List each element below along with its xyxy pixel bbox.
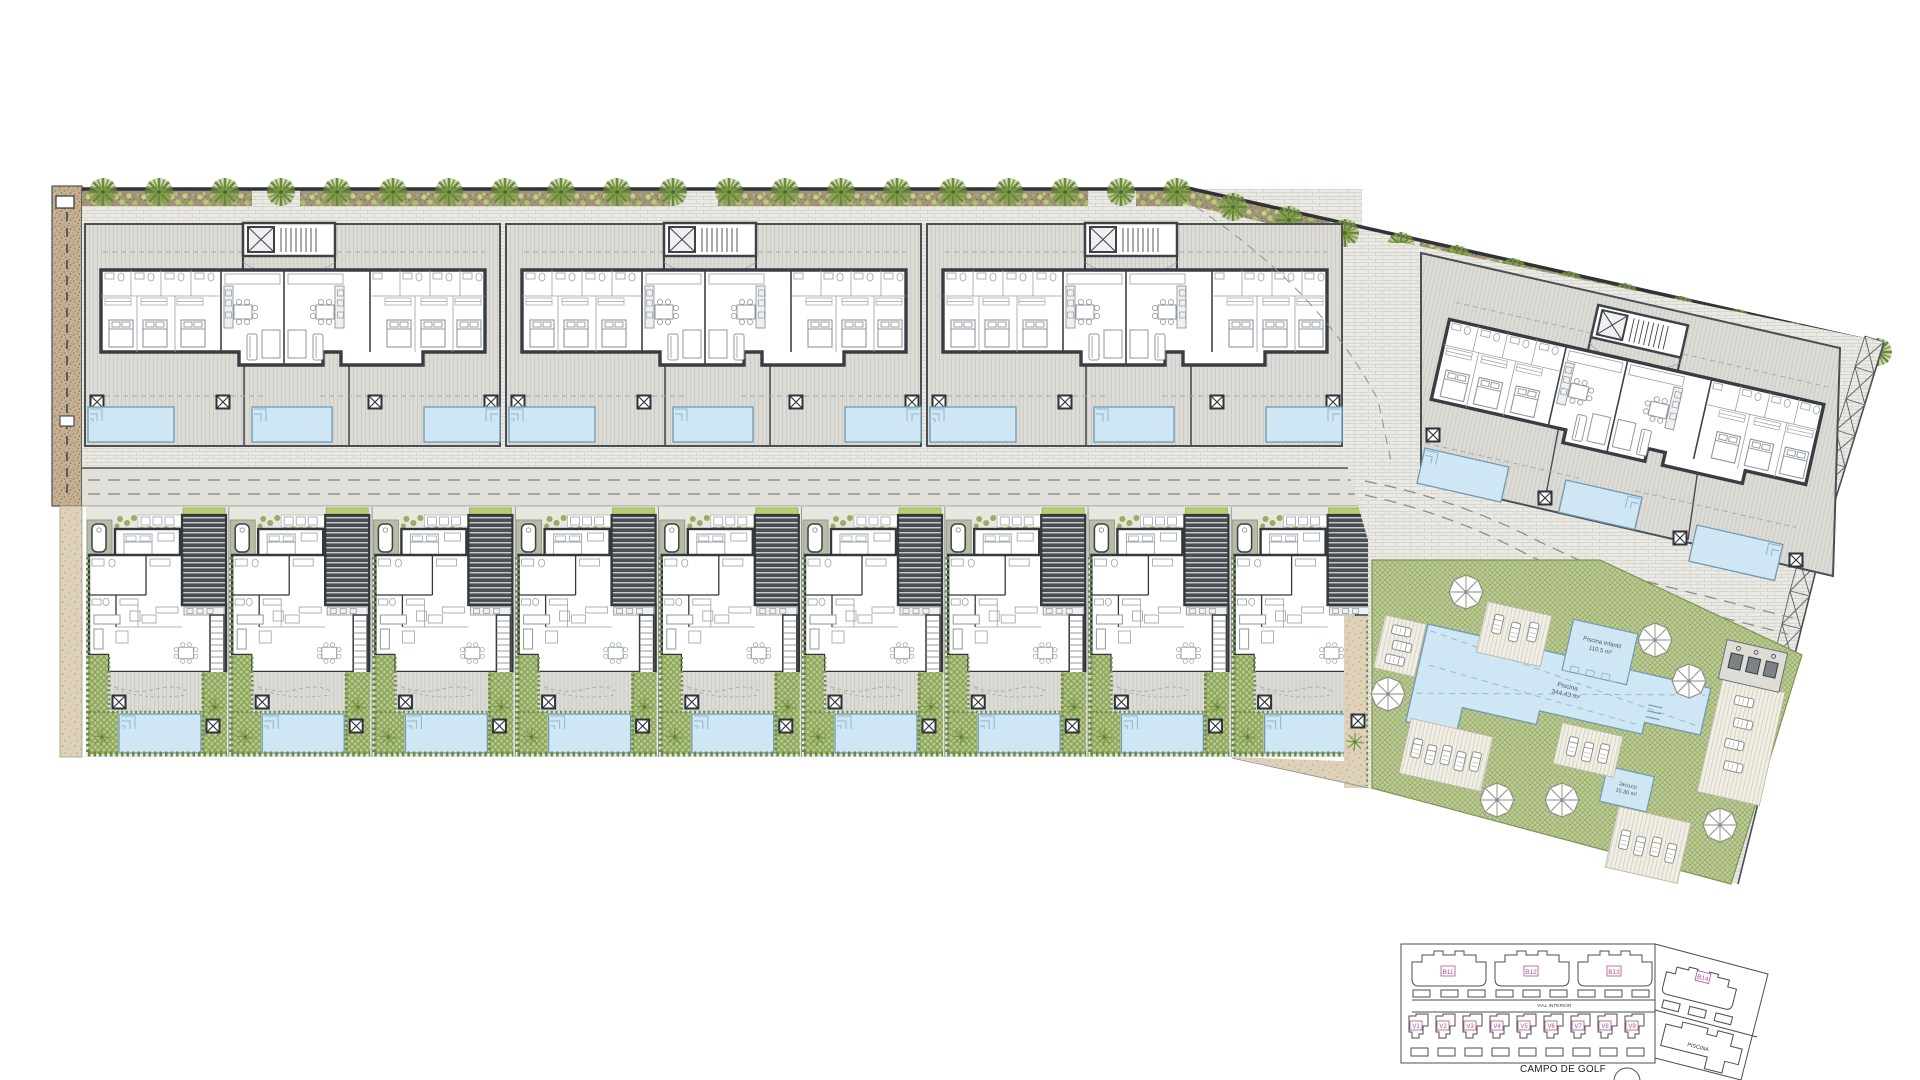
svg-text:V7: V7 (1574, 1024, 1582, 1030)
svg-text:V6: V6 (1547, 1024, 1555, 1030)
svg-text:B11: B11 (1442, 969, 1453, 976)
svg-text:V1: V1 (1412, 1024, 1420, 1030)
svg-text:V8: V8 (1601, 1024, 1609, 1030)
svg-text:V3: V3 (1466, 1024, 1474, 1030)
svg-text:V9: V9 (1628, 1024, 1636, 1030)
svg-text:B12: B12 (1525, 969, 1537, 976)
svg-text:B13: B13 (1608, 969, 1620, 976)
svg-text:V4: V4 (1493, 1024, 1501, 1030)
svg-text:VIAL INTERIOR: VIAL INTERIOR (1537, 1003, 1572, 1009)
svg-text:V5: V5 (1520, 1024, 1528, 1030)
svg-text:CAMPO DE GOLF: CAMPO DE GOLF (1520, 1064, 1606, 1075)
svg-text:V2: V2 (1439, 1024, 1447, 1030)
